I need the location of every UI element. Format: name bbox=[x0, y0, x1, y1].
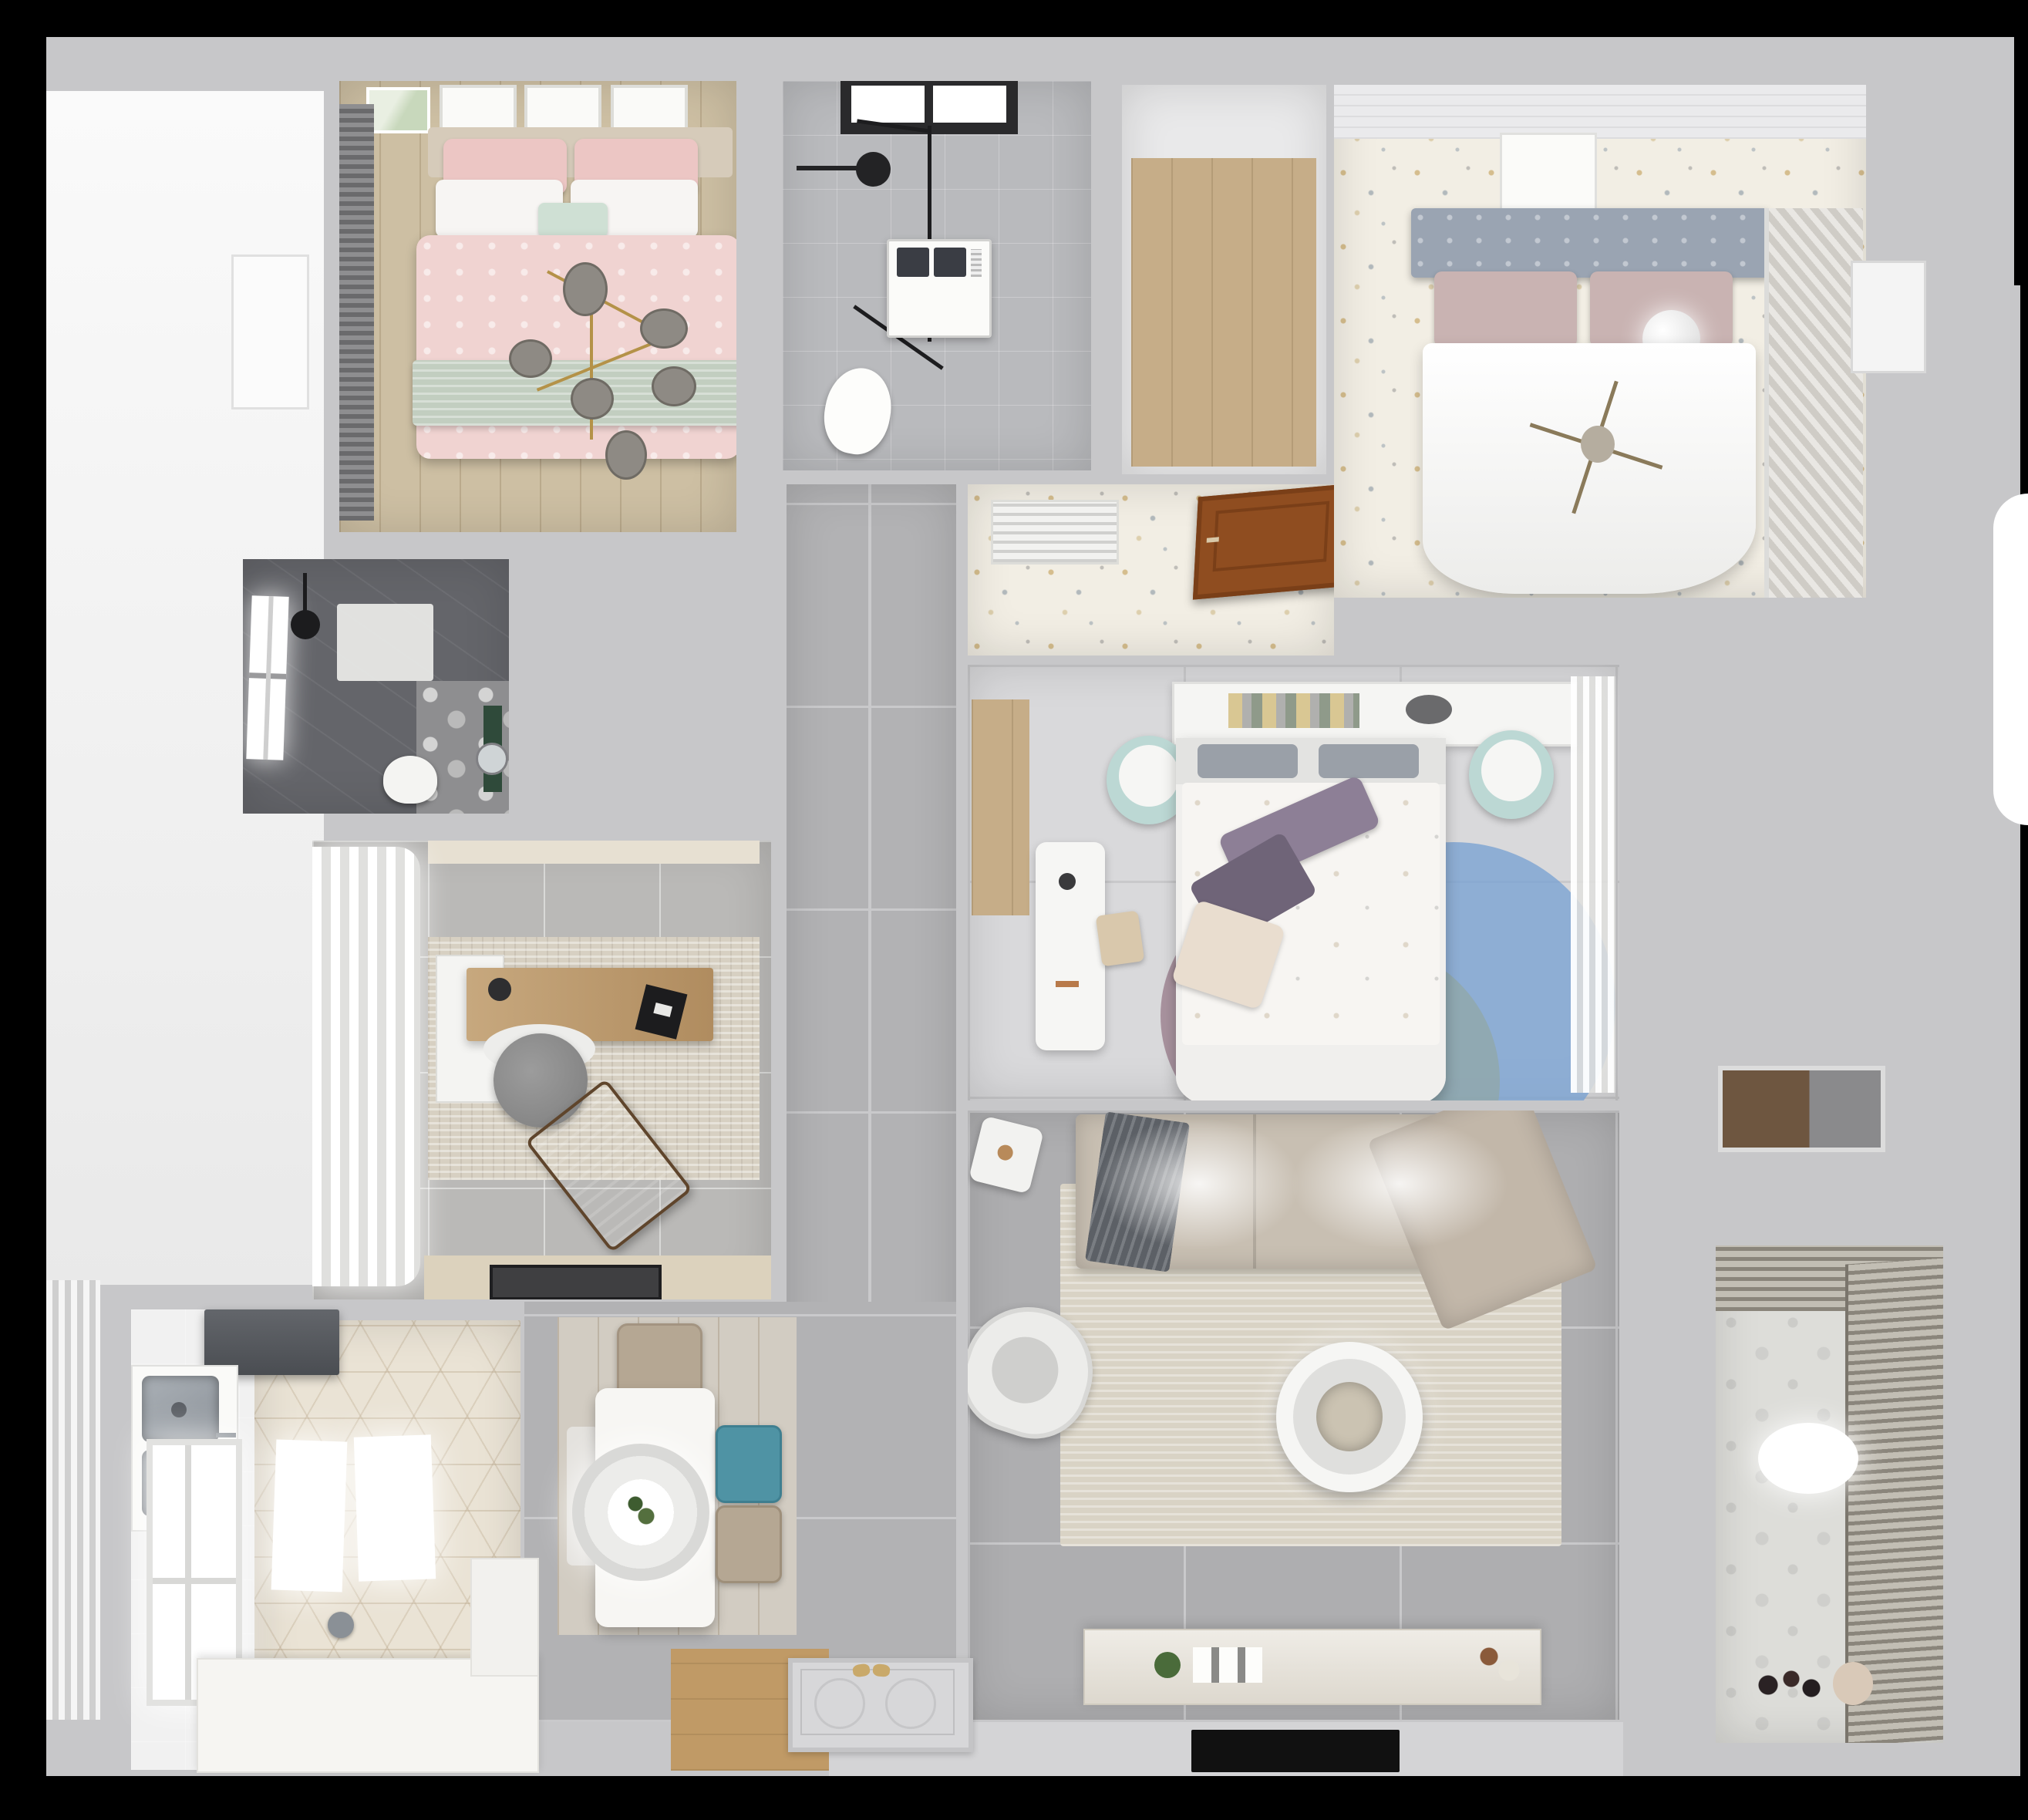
decor-vases bbox=[1478, 1644, 1521, 1684]
exterior-wood-niche bbox=[1718, 1066, 1885, 1152]
sink-basin bbox=[142, 1376, 219, 1442]
floor-plan-canvas bbox=[0, 0, 2028, 1820]
decor-frames bbox=[1193, 1647, 1262, 1683]
room-foyer bbox=[671, 1646, 979, 1774]
roman-blind bbox=[339, 104, 374, 521]
room-closet bbox=[1122, 85, 1326, 474]
exterior-left-blinds bbox=[46, 1280, 100, 1720]
bed bbox=[1176, 738, 1446, 1100]
white-desk bbox=[1036, 842, 1105, 1050]
shower-arm bbox=[797, 166, 860, 170]
louvered-wardrobe bbox=[1764, 208, 1863, 598]
room-bedroom-1 bbox=[339, 81, 736, 532]
left-wall-door bbox=[231, 254, 309, 410]
plant-centerpiece-icon bbox=[626, 1493, 657, 1530]
room-hallway-master bbox=[968, 484, 1334, 656]
dining-chair bbox=[716, 1505, 782, 1583]
gray-pillow bbox=[1198, 744, 1298, 778]
plant-icon bbox=[1154, 1652, 1181, 1678]
pouf bbox=[1833, 1662, 1873, 1705]
wall-art-frame-icon bbox=[1500, 133, 1597, 211]
room-balcony bbox=[1716, 1245, 1943, 1743]
shower-head-icon bbox=[856, 152, 891, 187]
shower-tray bbox=[337, 604, 433, 681]
dining-chair-teal bbox=[716, 1425, 782, 1503]
room-study bbox=[312, 841, 771, 1299]
wood-niche bbox=[972, 699, 1029, 915]
pillow bbox=[1434, 271, 1577, 347]
round-coffee-table bbox=[1276, 1342, 1423, 1492]
room-living bbox=[968, 1111, 1619, 1720]
toys-icon bbox=[1756, 1668, 1833, 1700]
shower-head-icon bbox=[291, 610, 320, 639]
toilet bbox=[818, 362, 898, 459]
mint-pouf bbox=[1469, 730, 1554, 819]
exterior-door-white bbox=[1851, 261, 1926, 373]
round-mirror-icon bbox=[476, 743, 508, 775]
room-bathroom-2 bbox=[243, 559, 509, 814]
ceiling-paneling bbox=[1334, 85, 1866, 139]
window bbox=[246, 595, 288, 760]
side-table bbox=[969, 1116, 1044, 1195]
ceiling-light-icon bbox=[1758, 1423, 1858, 1494]
books bbox=[1228, 693, 1359, 728]
room-bedroom-3 bbox=[968, 665, 1619, 1100]
edge-highlight bbox=[1993, 494, 2028, 825]
ceiling-light-glow bbox=[1292, 1118, 1508, 1249]
tub-faucet-icon bbox=[328, 1612, 354, 1638]
gray-pillow bbox=[1319, 744, 1419, 778]
picture-frame-icon bbox=[366, 87, 430, 133]
shower-arm bbox=[303, 573, 307, 613]
wood-floor bbox=[1131, 158, 1316, 467]
toilet bbox=[383, 756, 437, 804]
edge-notch bbox=[2014, 0, 2028, 285]
slipper-icon bbox=[872, 1663, 891, 1677]
branch-chandelier-icon bbox=[517, 254, 694, 478]
open-wood-door bbox=[1193, 484, 1334, 600]
tufted-headboard bbox=[1411, 208, 1770, 278]
air-vent-icon bbox=[991, 500, 1119, 565]
desk-chair bbox=[1096, 910, 1145, 966]
desk-lamp-icon bbox=[488, 978, 511, 1001]
sheer-curtains bbox=[312, 847, 420, 1286]
cross-chandelier-icon bbox=[1527, 378, 1666, 517]
front-door-mat bbox=[788, 1658, 973, 1752]
washing-machine bbox=[887, 239, 992, 338]
room-bathroom-1 bbox=[783, 81, 1091, 470]
accent-pillow bbox=[538, 203, 608, 237]
room-bedroom-2 bbox=[1334, 85, 1866, 598]
island-counter-lit bbox=[271, 1439, 348, 1592]
faucet-icon bbox=[216, 1433, 236, 1437]
room-kitchen bbox=[131, 1309, 524, 1772]
ceiling-light-glow bbox=[1099, 1118, 1299, 1249]
bowl bbox=[1406, 695, 1452, 724]
pendant-light-icon bbox=[572, 1444, 709, 1581]
flat-tv bbox=[1191, 1730, 1400, 1772]
wardrobe-sheer-curtains bbox=[1571, 676, 1615, 1093]
wall-shelf-strip bbox=[428, 841, 760, 864]
tv-console bbox=[1083, 1629, 1541, 1705]
island-counter-lit bbox=[354, 1434, 436, 1581]
door-mat bbox=[490, 1265, 662, 1299]
